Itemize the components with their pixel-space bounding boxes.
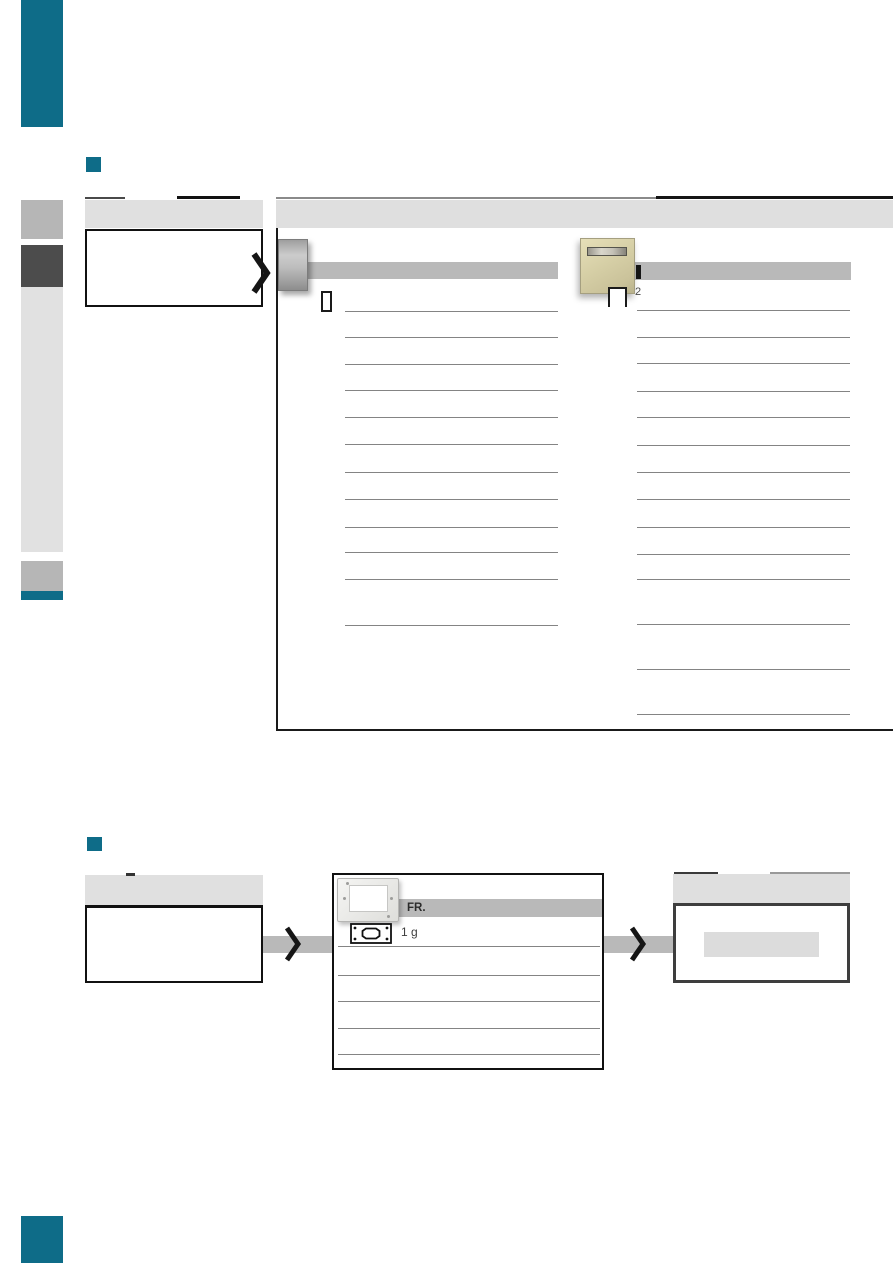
middle-box-row-line xyxy=(338,975,600,976)
left-column-row-line xyxy=(345,499,558,500)
left-column-row-line xyxy=(345,390,558,391)
clipped-text-mark xyxy=(674,872,718,874)
screw-hole xyxy=(390,897,393,900)
selector-table-header xyxy=(85,200,263,228)
left-column-row-line xyxy=(345,417,558,418)
page-edge-tab-top xyxy=(21,0,63,127)
left-column-row-line xyxy=(345,527,558,528)
left-column-row-line xyxy=(345,625,558,626)
catalog-page: 2 FR. 1 g xyxy=(0,0,893,1263)
plate-metal-bar xyxy=(587,247,627,256)
screw-hole xyxy=(387,915,390,918)
panel-left-border xyxy=(276,228,278,731)
page-edge-tab-bottom xyxy=(21,1216,63,1263)
right-column-row-line xyxy=(637,579,850,580)
left-column-row-line xyxy=(345,472,558,473)
left-column-row-line xyxy=(345,364,558,365)
chevron-right-icon xyxy=(629,925,649,963)
chevron-right-icon xyxy=(250,250,274,296)
screw-hole xyxy=(343,897,346,900)
right-column-row-line xyxy=(637,337,850,338)
right-column-row-line xyxy=(637,472,850,473)
result-header xyxy=(673,874,850,903)
sidebar-block-medium xyxy=(21,200,63,239)
middle-box-row-line xyxy=(338,1028,600,1029)
clipped-text-mark xyxy=(85,197,125,199)
flush-mounting-box-icon xyxy=(350,923,392,944)
frame-title-bar: FR. xyxy=(399,899,602,917)
chevron-right-icon xyxy=(284,925,304,963)
middle-box-row-line xyxy=(338,1001,600,1002)
right-column-row-line xyxy=(637,445,850,446)
frame-opening xyxy=(349,885,388,912)
selector-table-header-2 xyxy=(85,875,263,905)
left-column-row-line xyxy=(345,444,558,445)
right-column-row-line xyxy=(637,417,850,418)
single-module-outline-icon xyxy=(321,291,332,312)
clipped-text-mark xyxy=(126,873,135,876)
clipped-text-mark xyxy=(770,872,850,874)
right-column-row-line xyxy=(637,624,850,625)
mounting-frame-product-image xyxy=(337,878,399,922)
right-column-row-line xyxy=(637,554,850,555)
middle-box-row-line xyxy=(338,1054,600,1055)
module-count-badge: 2 xyxy=(635,286,641,298)
result-placeholder xyxy=(704,932,819,957)
section-marker-icon xyxy=(86,157,101,172)
panel-bottom-border xyxy=(276,729,893,731)
right-column-row-line xyxy=(637,714,850,715)
sidebar-block-light xyxy=(21,287,63,552)
beige-plate-product-image xyxy=(580,238,635,294)
left-column-row-line xyxy=(345,552,558,553)
selector-table-box-2 xyxy=(85,905,263,983)
result-box xyxy=(673,903,850,983)
middle-box-row-line xyxy=(338,946,600,947)
screw-hole xyxy=(346,882,349,885)
clipped-text-mark xyxy=(276,197,656,199)
sidebar-block-medium-2 xyxy=(21,561,63,591)
right-column-row-line xyxy=(637,499,850,500)
product-title-bar xyxy=(304,262,558,279)
left-column-row-line xyxy=(345,337,558,338)
silver-module-product-image xyxy=(278,239,308,291)
right-column-row-line xyxy=(637,363,850,364)
double-module-outline-icon xyxy=(608,287,627,307)
clipped-text-mark xyxy=(636,265,641,279)
frame-title-label: FR. xyxy=(399,899,602,917)
sidebar-block-dark xyxy=(21,245,63,287)
right-column-row-line xyxy=(637,527,850,528)
right-column-row-line xyxy=(637,310,850,311)
gang-count-label: 1 g xyxy=(401,925,418,939)
product-title-bar xyxy=(632,262,851,280)
right-column-row-line xyxy=(637,669,850,670)
clipped-text-mark xyxy=(177,196,240,199)
right-column-row-line xyxy=(637,391,850,392)
sidebar-teal-strip xyxy=(21,591,63,600)
left-column-row-line xyxy=(345,579,558,580)
selector-table-box xyxy=(85,229,263,307)
panel-header xyxy=(276,200,893,228)
left-column-row-line xyxy=(345,311,558,312)
section-marker-icon xyxy=(87,837,102,851)
clipped-text-mark xyxy=(656,196,893,199)
